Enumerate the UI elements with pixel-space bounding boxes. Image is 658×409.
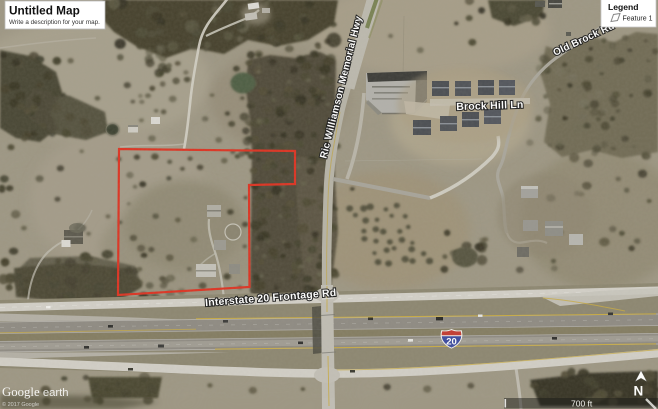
svg-text:Untitled Map: Untitled Map <box>9 4 80 18</box>
svg-text:Google earth: Google earth <box>2 385 69 399</box>
svg-text:Write a description for your m: Write a description for your map. <box>9 19 100 26</box>
svg-text:© 2017 Google: © 2017 Google <box>2 401 39 408</box>
svg-text:700 ft: 700 ft <box>571 399 593 409</box>
svg-text:N: N <box>634 384 644 399</box>
svg-text:Feature 1: Feature 1 <box>623 16 653 23</box>
svg-text:Legend: Legend <box>608 2 639 12</box>
